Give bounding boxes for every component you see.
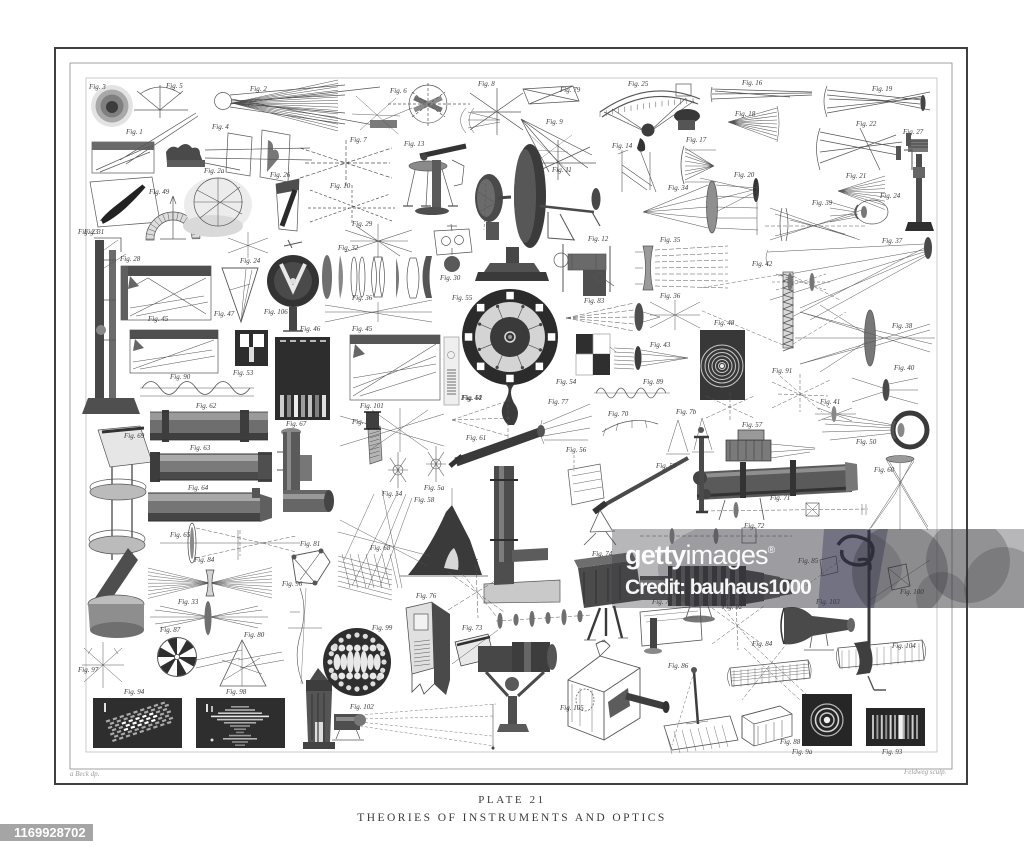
svg-text:Fig. 21: Fig. 21	[845, 172, 866, 180]
svg-text:Fig. 73: Fig. 73	[461, 624, 483, 632]
svg-text:1169928702: 1169928702	[14, 825, 86, 840]
svg-text:Fig. 17: Fig. 17	[685, 136, 707, 144]
svg-text:Fig. 28: Fig. 28	[119, 255, 141, 263]
svg-text:Fig. 101: Fig. 101	[359, 402, 384, 410]
svg-text:Fig. 89: Fig. 89	[642, 378, 664, 386]
svg-text:Fig. 29: Fig. 29	[351, 220, 373, 228]
svg-text:Fig. 43: Fig. 43	[649, 341, 671, 349]
svg-text:Fig. 45: Fig. 45	[147, 315, 169, 323]
svg-text:Fig. 98: Fig. 98	[225, 688, 247, 696]
svg-text:Fig. 46: Fig. 46	[299, 325, 321, 333]
svg-text:Fig. 32: Fig. 32	[337, 244, 359, 252]
svg-text:Fig. 106: Fig. 106	[263, 308, 288, 316]
svg-text:Feldweg sculp.: Feldweg sculp.	[903, 768, 947, 776]
svg-text:Fig. 87: Fig. 87	[159, 626, 181, 634]
svg-text:Fig. 8: Fig. 8	[477, 80, 495, 88]
svg-text:Fig. 40: Fig. 40	[893, 364, 915, 372]
svg-text:Fig. 16: Fig. 16	[741, 79, 763, 87]
svg-text:Fig. 41: Fig. 41	[819, 398, 840, 406]
svg-text:Fig. 96: Fig. 96	[281, 580, 303, 588]
svg-text:Fig. 27: Fig. 27	[902, 128, 924, 136]
svg-text:Fig. 94: Fig. 94	[123, 688, 145, 696]
svg-text:Fig. 52: Fig. 52	[461, 394, 483, 402]
svg-text:Fig. 75: Fig. 75	[457, 558, 479, 566]
svg-text:Fig. 90: Fig. 90	[169, 373, 191, 381]
svg-text:Fig. 84: Fig. 84	[193, 556, 215, 564]
svg-text:Fig. 105: Fig. 105	[559, 704, 584, 712]
svg-text:Fig. 39: Fig. 39	[811, 199, 833, 207]
svg-text:Fig. 5a: Fig. 5a	[423, 484, 445, 492]
svg-text:Fig. 57: Fig. 57	[741, 421, 763, 429]
svg-text:Fig. 12: Fig. 12	[587, 235, 609, 243]
svg-text:Fig. 83: Fig. 83	[583, 297, 605, 305]
svg-text:Fig. 10: Fig. 10	[329, 182, 351, 190]
svg-text:Fig. 61: Fig. 61	[465, 434, 486, 442]
svg-text:Fig. 102: Fig. 102	[349, 703, 374, 711]
svg-text:Fig. 48: Fig. 48	[713, 319, 735, 327]
svg-text:Fig. 69: Fig. 69	[123, 432, 145, 440]
svg-text:Fig. 20: Fig. 20	[733, 171, 755, 179]
svg-text:Fig. 68: Fig. 68	[369, 544, 391, 552]
svg-text:Fig. 65: Fig. 65	[169, 531, 191, 539]
svg-text:Fig. 42: Fig. 42	[751, 260, 773, 268]
svg-text:THEORIES OF INSTRUMENTS AND OP: THEORIES OF INSTRUMENTS AND OPTICS	[357, 812, 667, 824]
svg-text:Fig. 24: Fig. 24	[879, 192, 901, 200]
svg-text:Fig. 54: Fig. 54	[555, 378, 577, 386]
svg-text:Fig. 54: Fig. 54	[381, 490, 403, 498]
svg-text:Fig. 9: Fig. 9	[545, 118, 563, 126]
svg-text:Fig. 25: Fig. 25	[627, 80, 649, 88]
svg-text:Fig. 55: Fig. 55	[451, 294, 473, 302]
svg-text:Fig. 26: Fig. 26	[269, 171, 291, 179]
svg-text:Fig. 18: Fig. 18	[734, 110, 756, 118]
svg-text:Fig. 60: Fig. 60	[873, 466, 895, 474]
svg-text:Fig. 19: Fig. 19	[871, 85, 893, 93]
svg-text:Fig. 74: Fig. 74	[591, 550, 613, 558]
svg-text:Fig. 9: Fig. 9	[713, 386, 731, 394]
svg-text:Fig. 31: Fig. 31	[83, 228, 104, 236]
svg-text:Fig. 88: Fig. 88	[779, 738, 801, 746]
svg-text:Fig. 77: Fig. 77	[547, 398, 569, 406]
svg-text:Fig. 93: Fig. 93	[881, 748, 903, 756]
svg-text:Fig. 76: Fig. 76	[415, 592, 437, 600]
svg-text:Fig. 81: Fig. 81	[299, 540, 320, 548]
svg-text:Fig. 9a: Fig. 9a	[791, 748, 813, 756]
svg-text:Fig. 99: Fig. 99	[371, 624, 393, 632]
svg-text:Fig. 86: Fig. 86	[667, 662, 689, 670]
svg-text:Fig. 36: Fig. 36	[659, 292, 681, 300]
svg-text:Fig. 53: Fig. 53	[232, 369, 254, 377]
svg-text:Fig. 71: Fig. 71	[769, 494, 790, 502]
svg-text:Fig. 2a: Fig. 2a	[203, 167, 225, 175]
svg-text:Fig. 104: Fig. 104	[891, 642, 916, 650]
svg-text:Fig. 47: Fig. 47	[213, 310, 235, 318]
svg-text:Fig. 14: Fig. 14	[611, 142, 633, 150]
svg-text:Fig. 37: Fig. 37	[881, 237, 903, 245]
svg-text:Fig. 6: Fig. 6	[389, 87, 407, 95]
svg-text:Fig. 38: Fig. 38	[891, 322, 913, 330]
svg-text:Fig. 97: Fig. 97	[77, 666, 99, 674]
svg-text:Fig. 62: Fig. 62	[195, 402, 217, 410]
svg-text:Fig. 3: Fig. 3	[88, 83, 106, 91]
svg-text:Fig. 64: Fig. 64	[187, 484, 209, 492]
svg-text:Fig. 36: Fig. 36	[351, 294, 373, 302]
svg-text:a Beck dp.: a Beck dp.	[70, 770, 100, 778]
svg-text:Fig. 79: Fig. 79	[559, 86, 581, 94]
svg-text:Fig. 67: Fig. 67	[285, 420, 307, 428]
svg-text:Fig. 7: Fig. 7	[349, 136, 367, 144]
svg-text:Fig. 1: Fig. 1	[125, 128, 143, 136]
svg-text:Fig. 72: Fig. 72	[743, 522, 765, 530]
svg-text:Fig. 80: Fig. 80	[243, 631, 265, 639]
svg-text:PLATE 21: PLATE 21	[478, 794, 546, 806]
svg-text:Fig. 49: Fig. 49	[148, 188, 170, 196]
svg-text:Fig. 50: Fig. 50	[855, 438, 877, 446]
svg-text:Fig. 91: Fig. 91	[771, 367, 792, 375]
svg-text:Credit: bauhaus1000: Credit: bauhaus1000	[625, 576, 811, 599]
svg-text:Fig. 63: Fig. 63	[189, 444, 211, 452]
svg-text:Fig. 4: Fig. 4	[211, 123, 229, 131]
svg-text:Fig. 24: Fig. 24	[239, 257, 261, 265]
svg-text:Fig. 84: Fig. 84	[751, 640, 773, 648]
svg-text:Fig. 2: Fig. 2	[249, 85, 267, 93]
svg-text:Fig. 5: Fig. 5	[165, 82, 183, 90]
svg-text:Fig. 45: Fig. 45	[351, 325, 373, 333]
svg-text:Fig. 7b: Fig. 7b	[675, 408, 697, 416]
svg-text:gettyimages®: gettyimages®	[625, 540, 776, 570]
svg-text:Fig. 22: Fig. 22	[855, 120, 877, 128]
svg-text:Fig. 11: Fig. 11	[551, 166, 572, 174]
svg-text:Fig. 34: Fig. 34	[667, 184, 689, 192]
svg-text:Fig. 30: Fig. 30	[439, 274, 461, 282]
svg-text:Fig. 33: Fig. 33	[177, 598, 199, 606]
svg-text:Fig. 59: Fig. 59	[655, 462, 677, 470]
svg-text:Fig. 58: Fig. 58	[413, 496, 435, 504]
svg-text:Fig. 35: Fig. 35	[659, 236, 681, 244]
svg-text:Fig. 13: Fig. 13	[403, 140, 425, 148]
svg-text:Fig. 56: Fig. 56	[565, 446, 587, 454]
svg-text:Fig. 70: Fig. 70	[607, 410, 629, 418]
